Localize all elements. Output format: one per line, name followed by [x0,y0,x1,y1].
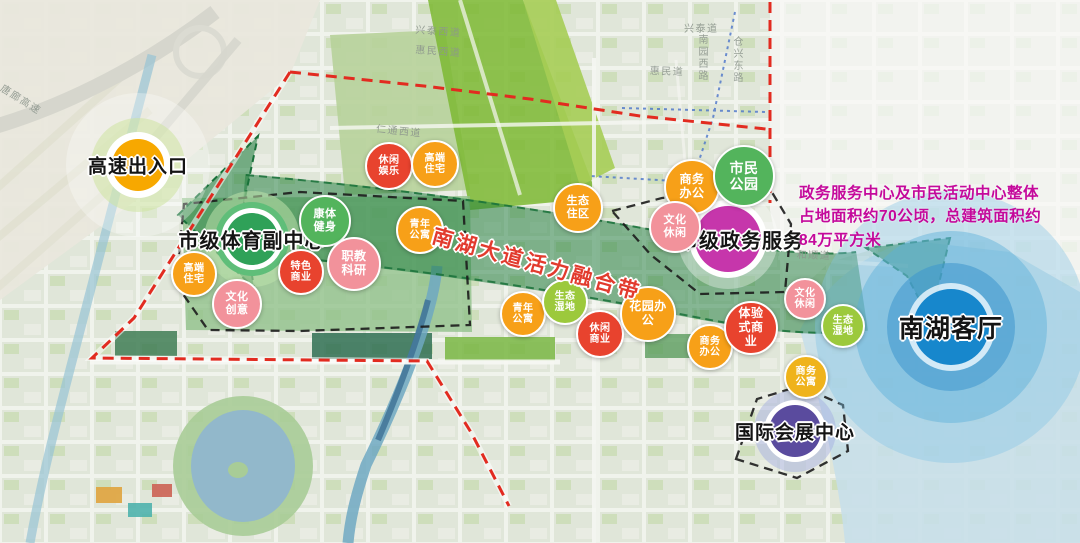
annotation-text: 政务服务中心及市民活动中心整体 占地面积约70公顷，总建筑面积约 84万平方米 [799,182,1061,252]
annotation-line-2: 占地面积约70公顷，总建筑面积约 [799,205,1061,228]
planning-map: 高速出入口市级体育副中心市级政务服务国际会展中心南湖客厅 休闲娱乐高端住宅康体健… [0,0,1080,543]
annotation-line-1: 政务服务中心及市民活动中心整体 [799,182,1061,205]
annotation-line-3: 84万平方米 [799,229,1061,252]
